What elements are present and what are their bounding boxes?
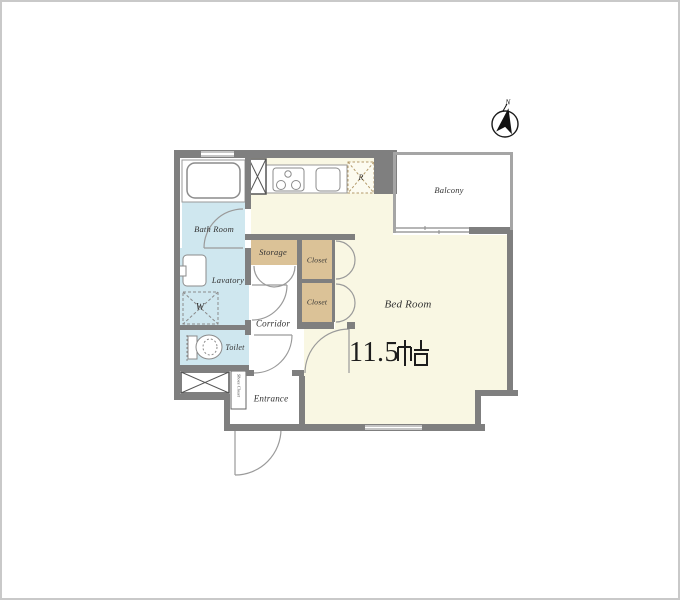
wall-lav-right	[245, 248, 251, 285]
sink	[316, 168, 340, 191]
wall-balcony-dark	[469, 227, 513, 234]
bathtub	[187, 163, 240, 198]
wall-right	[507, 227, 513, 396]
closet-upper-label: Closet	[307, 256, 327, 264]
bedroom-size-value: 11.5	[349, 339, 399, 367]
storage-label: Storage	[259, 248, 287, 257]
balcony-rail-top	[393, 152, 513, 155]
wall-door-nub	[347, 322, 355, 329]
lavatory-label: Lavatory	[212, 276, 244, 285]
wall-left	[174, 150, 180, 400]
floor-plan-drawing	[2, 2, 680, 600]
meter-box-icon	[181, 372, 229, 393]
closet-front-rail	[332, 240, 335, 322]
washbasin-faucet	[179, 266, 186, 276]
entrance-label: Entrance	[254, 395, 289, 404]
wall-entrance-top-a	[246, 370, 254, 376]
balcony-label: Balcony	[434, 186, 463, 195]
wall-entrance-right	[299, 376, 305, 424]
balcony-rail-left	[393, 152, 396, 233]
wall-closet-divider	[302, 279, 333, 283]
washer-label: W	[196, 303, 205, 313]
shoes-closet-label: Shoes Closet	[236, 374, 241, 397]
compass-north-label: N	[505, 98, 510, 106]
wall-bottom-left	[174, 394, 230, 400]
compass	[492, 104, 518, 137]
pipe-shaft-icon	[249, 159, 266, 194]
closet-lower-label: Closet	[307, 298, 327, 306]
refrigerator-label: R	[358, 174, 363, 182]
wall-corridor-closet	[297, 234, 302, 329]
wall-bottom	[224, 424, 485, 431]
front-door-arc	[235, 429, 281, 475]
floor-plan-page: N Bath Room Lavatory W Toilet Storage Cl…	[0, 0, 680, 600]
corridor-label: Corridor	[256, 320, 290, 329]
toilet-label: Toilet	[225, 344, 244, 352]
bath-room-label: Bath Room	[194, 225, 234, 234]
bedroom-floor	[335, 235, 513, 431]
bedroom-label: Bed Room	[384, 300, 431, 311]
wall-notch-v	[475, 394, 481, 431]
wall-lav-toilet	[180, 325, 249, 330]
bedroom-doorway-floor	[304, 329, 335, 431]
balcony-rail-right	[510, 152, 513, 230]
wall-entrance-top-b	[292, 370, 304, 376]
wall-bath-right	[245, 158, 251, 209]
wall-toilet-bottom	[180, 365, 249, 371]
wall-closet-bottom	[297, 322, 334, 329]
